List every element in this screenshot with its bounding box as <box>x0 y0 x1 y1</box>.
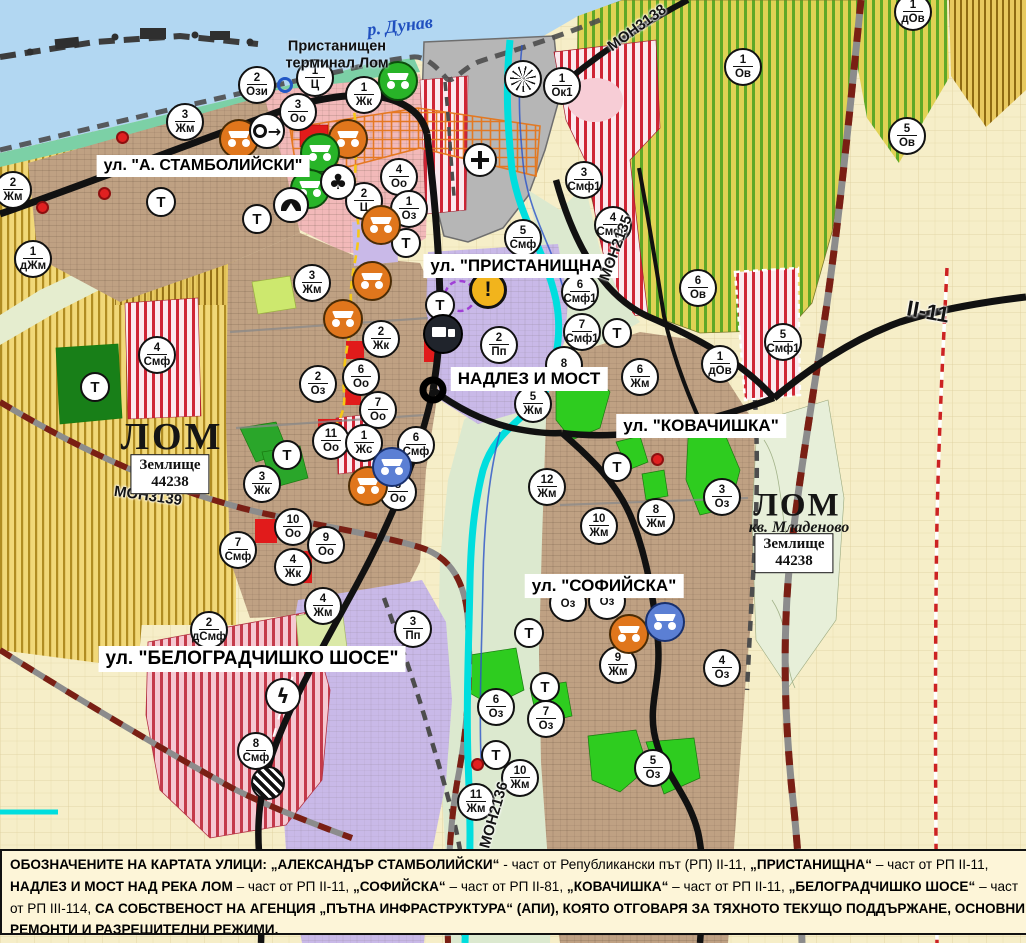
road-number-label: MOН3138 <box>604 1 669 55</box>
road-number-label: MOН2135 <box>596 213 635 283</box>
label-layer: ул. "А. СТАМБОЛИЙСКИ"ул. "ПРИСТАНИЩНА"НА… <box>0 0 1026 943</box>
street-label: ул. "СОФИЙСКА" <box>525 574 684 598</box>
land-plot-label: Землище44238 <box>130 454 209 494</box>
street-label: ул. "БЕЛОГРАДЧИШКО ШОСЕ" <box>99 646 406 672</box>
street-label: ул. "КОВАЧИШКА" <box>616 414 786 438</box>
legend-note-text: ОБОЗНАЧЕНИТЕ НА КАРТАТА УЛИЦИ: „АЛЕКСАНД… <box>10 854 1026 935</box>
road-number-label: MOН2136 <box>476 780 511 850</box>
city-name-label: ЛОМ <box>121 415 224 459</box>
legend-note: ОБОЗНАЧЕНИТЕ НА КАРТАТА УЛИЦИ: „АЛЕКСАНД… <box>0 849 1026 935</box>
street-label: ул. "ПРИСТАНИЩНА" <box>423 254 618 278</box>
road-number-label: II-11 <box>905 295 952 328</box>
river-name-label: р. Дунав <box>366 12 434 41</box>
map-viewport: 1Ц2Ози1Жк3Оо3Жм2Жм1дЖм4Оо2Ц1Оз1Ок13Смф14… <box>0 0 1026 943</box>
port-terminal-label: Пристанищентерминал Лом <box>285 38 388 71</box>
land-plot-label: Землище44238 <box>754 533 833 573</box>
street-label: НАДЛЕЗ И МОСТ <box>451 367 608 391</box>
street-label: ул. "А. СТАМБОЛИЙСКИ" <box>97 155 310 177</box>
